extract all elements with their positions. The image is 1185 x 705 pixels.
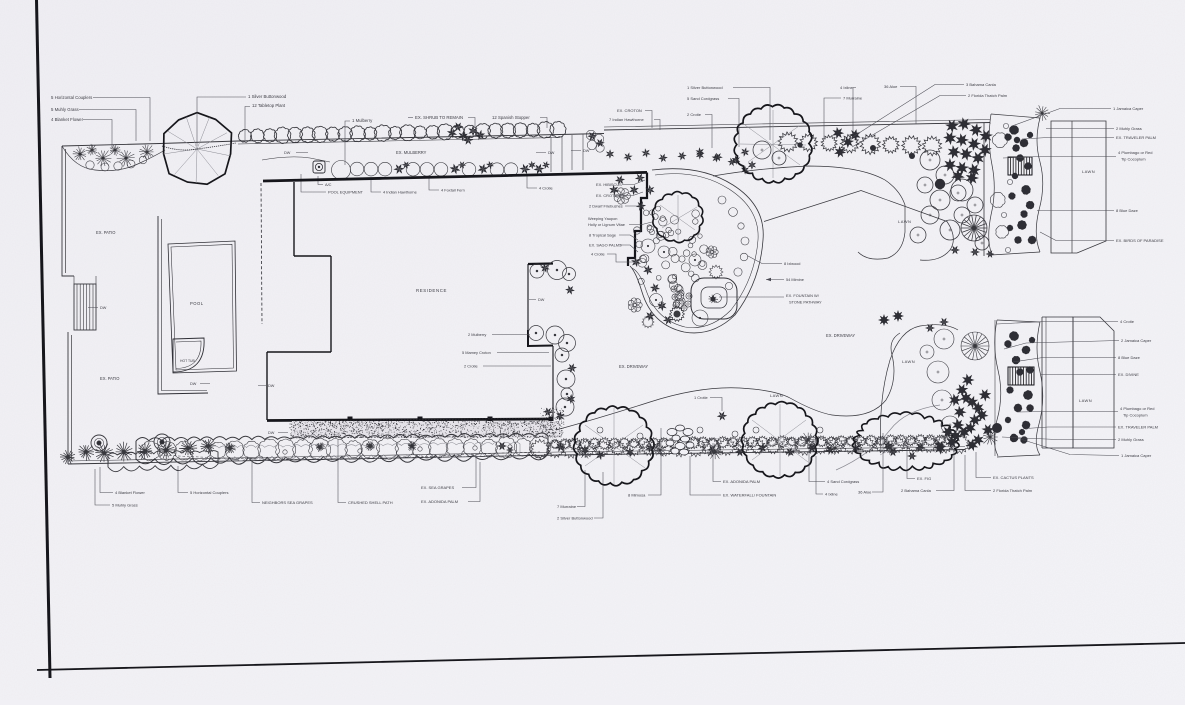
svg-text:2 Crotie: 2 Crotie [464, 364, 478, 369]
svg-text:EX. SAGO PALMS: EX. SAGO PALMS [589, 243, 622, 248]
svg-text:LAWN: LAWN [1079, 398, 1092, 403]
svg-text:DW: DW [548, 151, 555, 155]
svg-text:2 Muhly Grass: 2 Muhly Grass [1118, 437, 1144, 442]
svg-text:LAWN: LAWN [898, 219, 911, 224]
svg-text:1 Silver Buttonwood: 1 Silver Buttonwood [687, 85, 723, 90]
svg-text:DW: DW [190, 382, 197, 386]
svg-text:EX. CACTUS PLANTS: EX. CACTUS PLANTS [993, 475, 1034, 480]
svg-text:5 Sand Cordgrass: 5 Sand Cordgrass [687, 96, 719, 101]
svg-text:2 Bahama Canla: 2 Bahama Canla [901, 488, 932, 493]
svg-text:36 Aloe: 36 Aloe [884, 84, 898, 89]
svg-text:Weeping Yaupon: Weeping Yaupon [588, 216, 617, 221]
svg-text:3 Bahama Canla: 3 Bahama Canla [966, 82, 997, 87]
svg-text:EX. PATIO: EX. PATIO [100, 376, 119, 381]
svg-text:LAWN: LAWN [770, 393, 783, 398]
svg-text:8 Blue Daze: 8 Blue Daze [1116, 208, 1139, 213]
svg-text:4 Plumbago or Red: 4 Plumbago or Red [1118, 150, 1152, 155]
svg-text:POOL: POOL [190, 301, 204, 306]
svg-text:DW: DW [268, 431, 275, 435]
svg-text:2 Florida Thatch Palm: 2 Florida Thatch Palm [968, 93, 1008, 98]
svg-text:EX. SHRUB TO REMAIN: EX. SHRUB TO REMAIN [415, 115, 463, 120]
svg-text:DW: DW [100, 306, 107, 310]
svg-text:CRUSHED SHELL PATH: CRUSHED SHELL PATH [348, 500, 393, 505]
svg-text:2 Mulberry: 2 Mulberry [468, 332, 486, 337]
svg-text:A/C: A/C [325, 182, 332, 187]
svg-text:EX. PATIO: EX. PATIO [96, 230, 115, 235]
svg-text:12 Tabletop Plant: 12 Tabletop Plant [252, 103, 286, 108]
svg-text:4 Ixline: 4 Ixline [840, 85, 853, 90]
svg-text:Holly or Lignum Vitae: Holly or Lignum Vitae [588, 222, 625, 227]
svg-text:LAWN: LAWN [1082, 169, 1095, 174]
svg-text:POOL EQUIPMENT: POOL EQUIPMENT [328, 190, 364, 195]
svg-text:4 Foxtail Fern: 4 Foxtail Fern [441, 188, 465, 193]
svg-text:EX. WATERFALL/ FOUNTAIN: EX. WATERFALL/ FOUNTAIN [723, 493, 776, 498]
svg-text:EX. FIG: EX. FIG [917, 476, 931, 481]
svg-text:DW: DW [284, 151, 291, 155]
svg-text:4 Plumbago or Red: 4 Plumbago or Red [1120, 406, 1154, 411]
svg-text:4 Ixline: 4 Ixline [825, 492, 838, 497]
svg-text:8 Mimosa: 8 Mimosa [628, 493, 646, 498]
svg-text:1 Jamaica Caper: 1 Jamaica Caper [1121, 453, 1152, 458]
svg-text:DW: DW [268, 384, 275, 388]
svg-text:Tip Cocoplum: Tip Cocoplum [1123, 413, 1148, 418]
svg-text:5 Muhly Grass: 5 Muhly Grass [112, 503, 138, 508]
svg-text:Tip Cocoplum: Tip Cocoplum [1121, 157, 1146, 162]
svg-text:HOT TUB: HOT TUB [180, 359, 195, 363]
svg-text:1 Silver Buttonwood: 1 Silver Buttonwood [248, 94, 287, 99]
svg-text:4 Sand Cordgrass: 4 Sand Cordgrass [827, 479, 859, 484]
svg-text:4 Crotie: 4 Crotie [539, 186, 553, 191]
svg-text:4 Blanket Flower: 4 Blanket Flower [115, 490, 145, 495]
svg-text:STONE PATHWAY: STONE PATHWAY [789, 300, 822, 305]
svg-text:4 Crotie: 4 Crotie [1120, 319, 1135, 324]
svg-text:7 Indian Hawthorne: 7 Indian Hawthorne [609, 117, 644, 122]
svg-text:1 Mulberry: 1 Mulberry [352, 118, 373, 123]
svg-text:EX. DRIVEWAY: EX. DRIVEWAY [826, 333, 855, 338]
svg-text:2 Florida Thatch Palm: 2 Florida Thatch Palm [993, 488, 1033, 493]
svg-text:5 Muhly Grass: 5 Muhly Grass [51, 107, 79, 112]
svg-text:EX. HIBISCUS: EX. HIBISCUS [596, 182, 622, 187]
svg-text:36 Aloe: 36 Aloe [858, 490, 872, 495]
svg-text:2 Silver Buttonwood: 2 Silver Buttonwood [557, 516, 593, 521]
svg-text:4 Crotie: 4 Crotie [591, 252, 605, 257]
svg-text:LAWN: LAWN [902, 359, 915, 364]
svg-text:2 Jamaica Caper: 2 Jamaica Caper [1121, 338, 1152, 343]
svg-text:DW: DW [538, 298, 545, 302]
svg-text:DW: DW [583, 149, 590, 153]
svg-text:5 Horizontal Couplers: 5 Horizontal Couplers [51, 95, 92, 100]
svg-text:2 Muhly Grass: 2 Muhly Grass [1116, 126, 1142, 131]
svg-text:8 Blue Daze: 8 Blue Daze [1118, 355, 1141, 360]
svg-text:12 Spanish Stopper: 12 Spanish Stopper [492, 115, 530, 120]
svg-text:5 Mamey Croton: 5 Mamey Croton [462, 350, 491, 355]
svg-text:EX. ADONIDA PALM: EX. ADONIDA PALM [723, 479, 760, 484]
svg-text:EX. TRAVELER PALM: EX. TRAVELER PALM [1118, 425, 1158, 430]
svg-text:EX. BIRDS OF PARADISE: EX. BIRDS OF PARADISE [1116, 238, 1164, 243]
svg-text:EX. DIVINE: EX. DIVINE [1118, 372, 1139, 377]
svg-text:8 Tropical Sage: 8 Tropical Sage [589, 233, 616, 238]
svg-text:RESIDENCE: RESIDENCE [416, 288, 447, 293]
svg-text:4 Indian Hawthorne: 4 Indian Hawthorne [383, 190, 417, 195]
svg-text:EX. MULBERRY: EX. MULBERRY [396, 150, 427, 155]
svg-text:8 Ixlwood: 8 Ixlwood [784, 261, 800, 266]
svg-text:EX. TRAVELER PALM: EX. TRAVELER PALM [1116, 135, 1156, 140]
svg-text:EX. DRIVEWAY: EX. DRIVEWAY [619, 364, 648, 369]
svg-text:54 Mimine: 54 Mimine [786, 277, 804, 282]
svg-text:EX. CROTON: EX. CROTON [617, 108, 642, 113]
svg-text:4 Blanket Flower: 4 Blanket Flower [51, 117, 84, 122]
svg-text:1 Crotie: 1 Crotie [694, 395, 708, 400]
svg-text:1 Jamaica Caper: 1 Jamaica Caper [1113, 106, 1144, 111]
svg-text:2 Dwarf Firebushes: 2 Dwarf Firebushes [589, 204, 623, 209]
svg-text:2 Crotie: 2 Crotie [687, 112, 702, 117]
svg-text:NEIGHBORS SEA GRAPES: NEIGHBORS SEA GRAPES [262, 500, 313, 505]
svg-text:EX. ADONIDA PALM: EX. ADONIDA PALM [421, 499, 458, 504]
svg-text:EX. FOUNTAIN W/: EX. FOUNTAIN W/ [786, 293, 820, 298]
svg-text:EX. CROTONS: EX. CROTONS [596, 193, 623, 198]
svg-text:EX. SEA GRAPES: EX. SEA GRAPES [421, 485, 454, 490]
svg-text:5 Horizontal Couplers: 5 Horizontal Couplers [190, 490, 228, 495]
svg-text:7 Murraine: 7 Murraine [557, 504, 577, 509]
